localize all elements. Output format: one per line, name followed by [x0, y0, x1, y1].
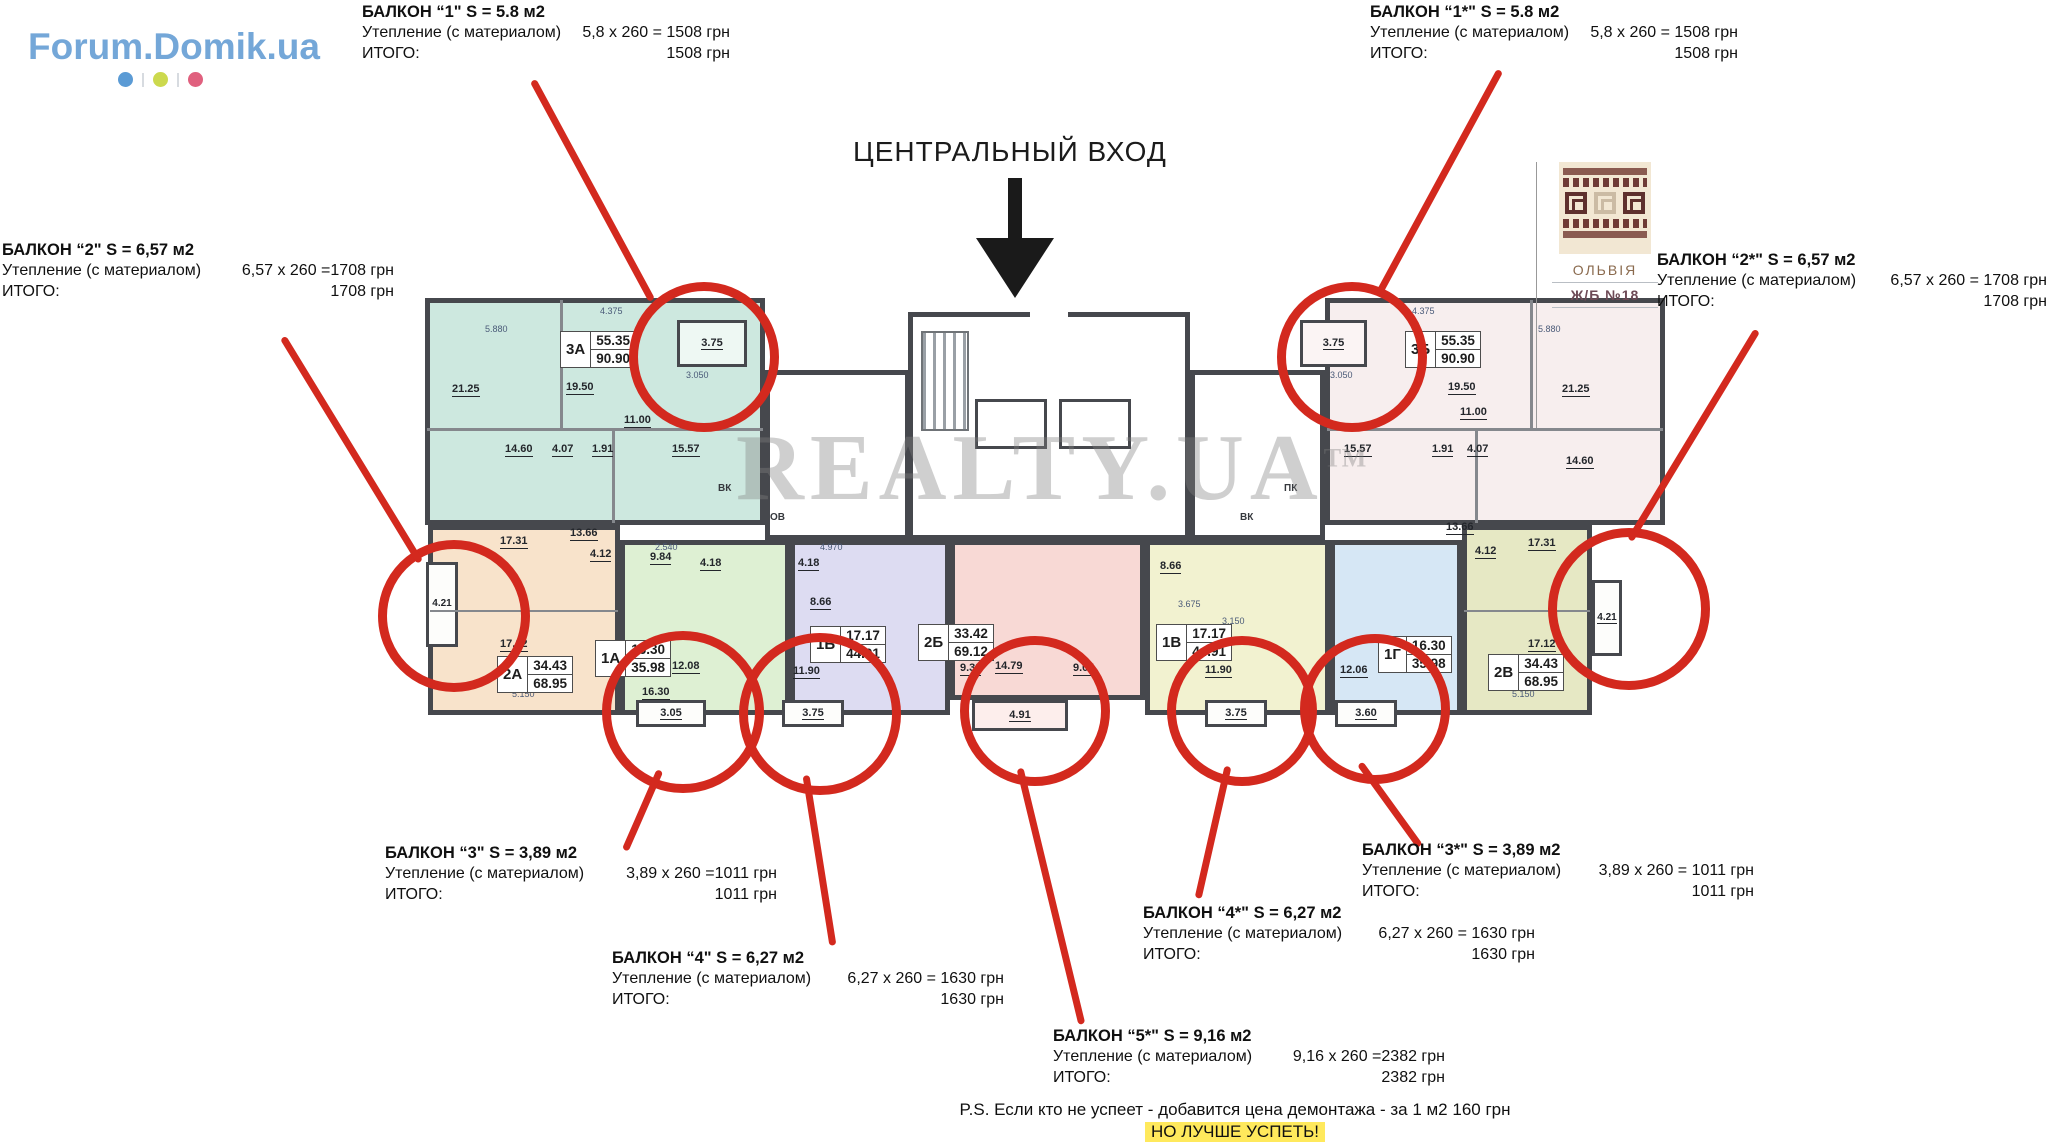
unit-id: 1В	[1157, 631, 1186, 654]
leader-line-balcony-1	[530, 79, 655, 302]
badge-divider	[1552, 307, 1658, 308]
logo-dot-separator	[177, 73, 179, 87]
unit-label-3a: 3А 55.3590.90	[560, 331, 636, 368]
entrance-arrow-head	[976, 238, 1054, 298]
dimension-label: 5.880	[485, 324, 508, 334]
unit-id: 2Б	[919, 631, 948, 654]
annotation-total: 1630 грн	[1471, 945, 1535, 966]
annotation-total-label: ИТОГО:	[1143, 945, 1201, 966]
interior-wall	[1530, 300, 1533, 428]
room-area: 19.50	[566, 381, 594, 395]
annotation-total-label: ИТОГО:	[385, 885, 443, 906]
dimension-label: 3.675	[1178, 599, 1201, 609]
annotation-balcony-4: БАЛКОН “4" S = 6,27 м2 Утепление (с мате…	[612, 948, 1004, 1011]
annotation-label: Утепление (с материалом)	[1657, 271, 1856, 292]
balcony-4s-highlight-circle	[1167, 636, 1317, 786]
unit-id: 2В	[1489, 661, 1518, 684]
building-number: Ж/Б №18	[1552, 287, 1658, 303]
ornament-bar	[1563, 168, 1647, 175]
annotation-label: Утепление (с материалом)	[1370, 23, 1569, 44]
room-area: 4.18	[798, 557, 819, 571]
room-area: 17.31	[500, 535, 528, 549]
room-area: 21.25	[1562, 383, 1590, 397]
leader-line-balcony-4s	[1195, 766, 1232, 899]
annotation-calc: 5,8 x 260 = 1508 грн	[582, 23, 730, 44]
annotation-title: БАЛКОН “2*" S = 6,57 м2	[1657, 250, 2047, 271]
annotation-title: БАЛКОН “5*" S = 9,16 м2	[1053, 1026, 1445, 1047]
annotation-total-label: ИТОГО:	[1370, 44, 1428, 65]
annotation-calc: 6,57 x 260 = 1708 грн	[1890, 271, 2047, 292]
annotation-total: 1508 грн	[666, 44, 730, 65]
ps-line1: P.S. Если кто не успеет - добавится цена…	[800, 1100, 1670, 1120]
annotation-total: 1708 грн	[330, 282, 394, 303]
annotation-balcony-3: БАЛКОН “3" S = 3,89 м2 Утепление (с мате…	[385, 843, 777, 906]
annotation-calc: 6,27 x 260 = 1630 грн	[847, 969, 1004, 990]
dimension-label: 4.970	[820, 542, 843, 552]
entrance-door-gap	[1030, 308, 1068, 317]
vent-shaft-label: ВК	[718, 483, 731, 494]
balcony-3s-highlight-circle	[1300, 634, 1450, 784]
room-area: 14.60	[1566, 455, 1594, 469]
room-area: 21.25	[452, 383, 480, 397]
annotation-title: БАЛКОН “4*" S = 6,27 м2	[1143, 903, 1535, 924]
realty-watermark: REALTY.UAТМ	[736, 414, 1367, 522]
room-area: 1.91	[592, 443, 613, 457]
annotation-title: БАЛКОН “2" S = 6,57 м2	[2, 240, 394, 261]
greek-key-ornament-icon	[1559, 162, 1651, 254]
logo-dot-pink	[188, 72, 203, 87]
logo-dot-blue	[118, 72, 133, 87]
unit-total-area: 68.95	[528, 674, 572, 692]
annotation-label: Утепление (с материалом)	[1143, 924, 1342, 945]
annotation-balcony-2: БАЛКОН “2" S = 6,57 м2 Утепление (с мате…	[2, 240, 394, 303]
entrance-arrow-icon	[1008, 178, 1022, 240]
central-entrance-label: ЦЕНТРАЛЬНЫЙ ВХОД	[853, 136, 1167, 168]
annotation-calc: 5,8 x 260 = 1508 грн	[1590, 23, 1738, 44]
meander-icon	[1565, 192, 1587, 214]
interior-wall	[1327, 428, 1663, 431]
balcony-1s-highlight-circle	[1277, 282, 1427, 432]
annotation-label: Утепление (с материалом)	[1362, 861, 1561, 882]
ornament-squares	[1563, 178, 1647, 187]
logo-dot-green	[153, 72, 168, 87]
annotation-total: 1630 грн	[940, 990, 1004, 1011]
annotation-total-label: ИТОГО:	[1053, 1068, 1111, 1089]
dimension-label: 5.880	[1538, 324, 1561, 334]
forum-domik-logo[interactable]: Forum.Domik.ua	[28, 26, 320, 68]
annotation-balcony-3s: БАЛКОН “3*" S = 3,89 м2 Утепление (с мат…	[1362, 840, 1754, 903]
leader-line-balcony-4	[803, 775, 837, 946]
annotation-title: БАЛКОН “3" S = 3,89 м2	[385, 843, 777, 864]
balcony-5-highlight-circle	[960, 636, 1110, 786]
unit-label-2b: 2Б 33.4269.12	[918, 624, 994, 661]
leader-line-balcony-2	[280, 336, 423, 564]
annotation-total: 1011 грн	[715, 885, 777, 906]
annotation-total-label: ИТОГО:	[2, 282, 60, 303]
badge-divider	[1552, 282, 1658, 283]
logo-dot-separator	[142, 73, 144, 87]
meander-icon	[1623, 192, 1645, 214]
room-area: 17.31	[1528, 537, 1556, 551]
room-area: 4.12	[1475, 545, 1496, 559]
ps-line2-highlighted: НО ЛУЧШЕ УСПЕТЬ!	[1145, 1122, 1325, 1142]
complex-name: ОЛЬВІЯ	[1552, 262, 1658, 278]
leader-line-balcony-5	[1017, 768, 1086, 1025]
annotation-total: 2382 грн	[1381, 1068, 1445, 1089]
balcony-2s-highlight-circle	[1548, 528, 1710, 690]
watermark-tm: ТМ	[1324, 444, 1368, 473]
annotation-total: 1508 грн	[1674, 44, 1738, 65]
room-area: 11.00	[1460, 406, 1487, 420]
room-area: 19.50	[1448, 381, 1476, 395]
room-area: 13.66	[1446, 521, 1474, 535]
annotation-balcony-1: БАЛКОН “1" S = 5.8 м2 Утепление (с матер…	[362, 2, 730, 65]
room-area: 11.00	[624, 414, 651, 428]
ps-note: P.S. Если кто не успеет - добавится цена…	[800, 1100, 1670, 1142]
room-area: 9.84	[650, 551, 671, 565]
unit-living-area: 55.35	[1436, 332, 1480, 349]
balcony-1-highlight-circle	[629, 282, 779, 432]
room-area: 4.07	[1467, 443, 1488, 457]
annotation-calc: 9,16 x 260 =2382 грн	[1293, 1047, 1445, 1068]
ornament-meanders	[1563, 188, 1647, 218]
annotation-title: БАЛКОН “3*" S = 3,89 м2	[1362, 840, 1754, 861]
ornament-bar	[1563, 231, 1647, 238]
watermark-text: REALTY.UA	[736, 416, 1324, 520]
annotation-balcony-2s: БАЛКОН “2*" S = 6,57 м2 Утепление (с мат…	[1657, 250, 2047, 313]
unit-living-area: 34.43	[528, 657, 572, 674]
room-area: 17.12	[1528, 638, 1556, 652]
dimension-label: 4.375	[600, 306, 623, 316]
annotation-title: БАЛКОН “1*" S = 5.8 м2	[1370, 2, 1738, 23]
annotation-calc: 6,57 x 260 =1708 грн	[242, 261, 394, 282]
room-area: 1.91	[1432, 443, 1453, 457]
annotation-balcony-1s: БАЛКОН “1*" S = 5.8 м2 Утепление (с мате…	[1370, 2, 1738, 65]
leader-line-balcony-1s	[1375, 69, 1503, 297]
page-canvas: 3.75 3.75 4.21 4.21 3.05 3.75 4.91 3.75 …	[0, 0, 2048, 1142]
room-area: 4.07	[552, 443, 573, 457]
room-area: 8.66	[810, 596, 831, 610]
room-area: 8.66	[1160, 560, 1181, 574]
unit-living-area: 33.42	[949, 625, 993, 642]
unit-living-area: 34.43	[1519, 655, 1563, 672]
meander-icon	[1594, 192, 1616, 214]
annotation-balcony-4s: БАЛКОН “4*" S = 6,27 м2 Утепление (с мат…	[1143, 903, 1535, 966]
olvia-badge: ОЛЬВІЯ Ж/Б №18	[1552, 162, 1658, 312]
room-area: 15.57	[672, 443, 700, 457]
balcony-2-highlight-circle	[378, 540, 530, 692]
badge-leader-line	[1536, 162, 1537, 428]
annotation-label: Утепление (с материалом)	[2, 261, 201, 282]
dimension-label: 4.375	[1412, 306, 1435, 316]
annotation-total-label: ИТОГО:	[362, 44, 420, 65]
annotation-label: Утепление (с материалом)	[385, 864, 584, 885]
room-area: 4.12	[590, 548, 611, 562]
room-area: 14.60	[505, 443, 533, 457]
annotation-title: БАЛКОН “4" S = 6,27 м2	[612, 948, 1004, 969]
annotation-total-label: ИТОГО:	[1657, 292, 1715, 313]
annotation-total: 1708 грн	[1983, 292, 2047, 313]
annotation-total-label: ИТОГО:	[612, 990, 670, 1011]
annotation-total-label: ИТОГО:	[1362, 882, 1420, 903]
room-area: 13.66	[570, 527, 598, 541]
annotation-balcony-5s: БАЛКОН “5*" S = 9,16 м2 Утепление (с мат…	[1053, 1026, 1445, 1089]
annotation-label: Утепление (с материалом)	[362, 23, 561, 44]
unit-id: 3А	[561, 338, 590, 361]
unit-total-area: 68.95	[1519, 672, 1563, 690]
ornament-squares	[1563, 219, 1647, 228]
annotation-calc: 3,89 x 260 =1011 грн	[626, 864, 777, 885]
logo-dots	[118, 72, 203, 87]
dimension-label: 2.540	[655, 542, 678, 552]
unit-living-area: 55.35	[591, 332, 635, 349]
annotation-calc: 6,27 x 260 = 1630 грн	[1378, 924, 1535, 945]
unit-total-area: 90.90	[1436, 349, 1480, 367]
annotation-calc: 3,89 x 260 = 1011 грн	[1599, 861, 1754, 882]
annotation-label: Утепление (с материалом)	[1053, 1047, 1252, 1068]
balcony-4-highlight-circle	[739, 633, 901, 795]
unit-label-2v: 2В 34.4368.95	[1488, 654, 1564, 691]
annotation-label: Утепление (с материалом)	[612, 969, 811, 990]
annotation-total: 1011 грн	[1692, 882, 1754, 903]
annotation-title: БАЛКОН “1" S = 5.8 м2	[362, 2, 730, 23]
room-area: 4.18	[700, 557, 721, 571]
